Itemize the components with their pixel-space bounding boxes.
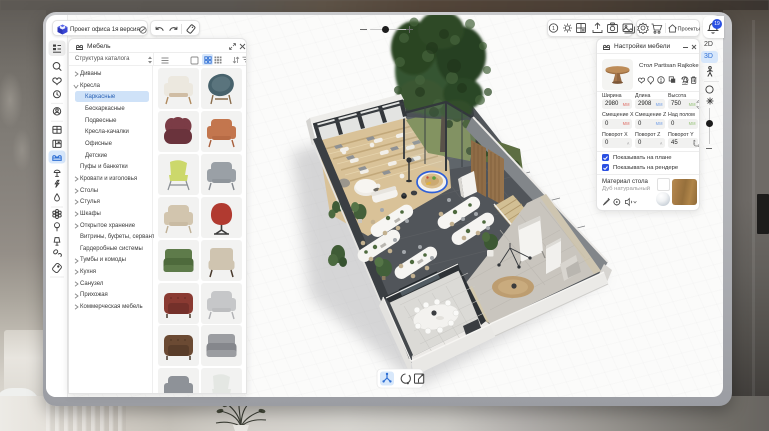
svg-text:Проекты: Проекты [678, 26, 700, 32]
svg-text:1: 1 [552, 26, 555, 32]
